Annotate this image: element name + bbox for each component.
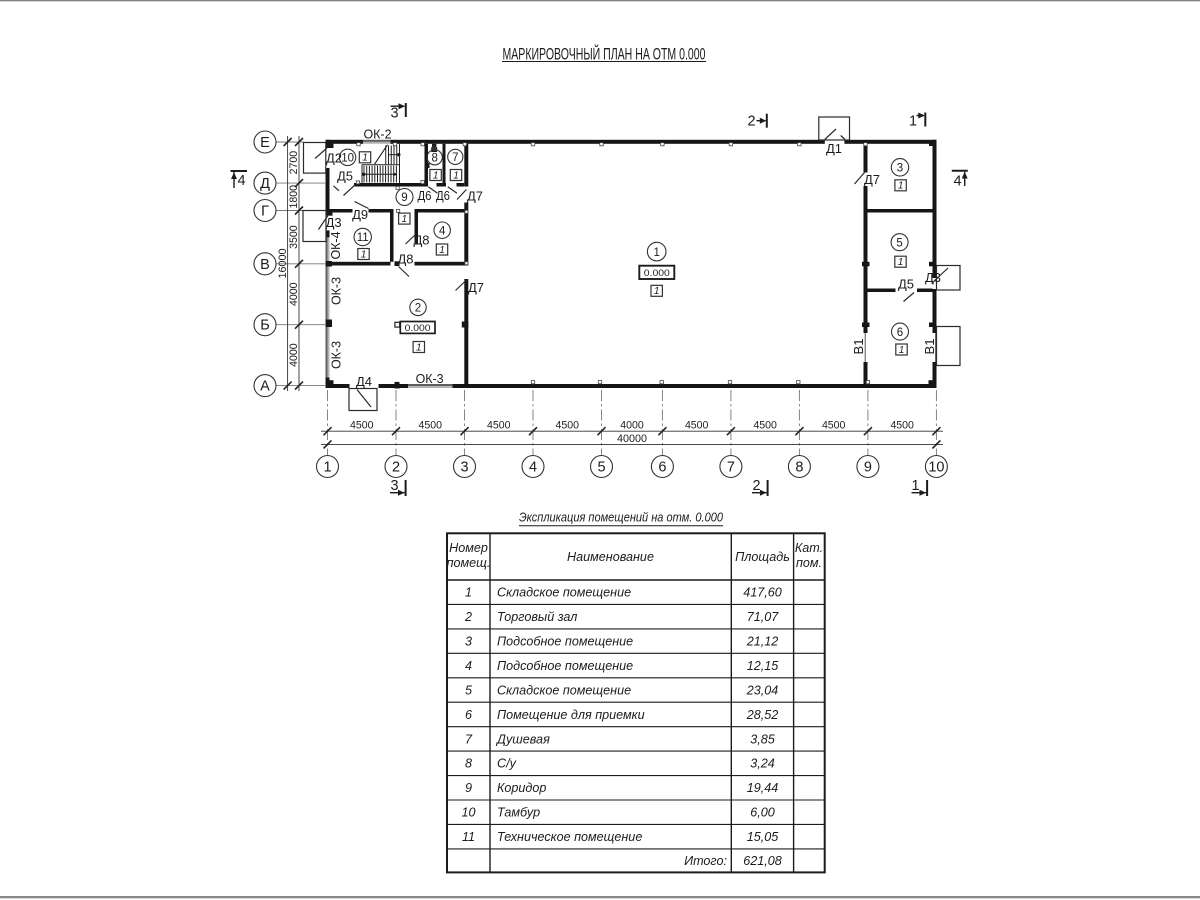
svg-text:МАРКИРОВОЧНЫЙ ПЛАН НА ОТМ 0.00: МАРКИРОВОЧНЫЙ ПЛАН НА ОТМ 0.000 <box>503 45 706 64</box>
svg-text:1: 1 <box>653 247 659 259</box>
svg-text:4: 4 <box>439 225 446 237</box>
svg-text:ОК-3: ОК-3 <box>416 371 444 386</box>
svg-text:621,08: 621,08 <box>743 854 782 868</box>
svg-text:5: 5 <box>896 237 902 249</box>
svg-text:Д4: Д4 <box>356 375 372 389</box>
svg-text:1: 1 <box>465 586 472 600</box>
svg-text:4000: 4000 <box>620 420 644 432</box>
svg-text:4: 4 <box>237 173 245 189</box>
svg-text:Подсобное помещение: Подсобное помещение <box>497 659 633 673</box>
svg-text:Тамбур: Тамбур <box>497 806 540 820</box>
svg-text:Д9: Д9 <box>352 208 368 222</box>
svg-text:Д7: Д7 <box>468 281 484 295</box>
svg-text:Д6: Д6 <box>418 189 432 203</box>
svg-text:Б: Б <box>260 318 270 334</box>
svg-text:23,04: 23,04 <box>746 683 779 697</box>
svg-text:Душевая: Душевая <box>495 732 550 746</box>
svg-text:8: 8 <box>431 153 437 165</box>
svg-text:4000: 4000 <box>288 343 300 367</box>
svg-text:1: 1 <box>362 153 368 164</box>
svg-text:2: 2 <box>752 478 760 494</box>
svg-text:Наименование: Наименование <box>567 550 654 564</box>
svg-text:3: 3 <box>460 460 468 476</box>
svg-text:В1: В1 <box>851 339 866 355</box>
svg-text:0.000: 0.000 <box>405 323 431 334</box>
svg-text:9: 9 <box>864 460 872 476</box>
svg-text:3: 3 <box>390 478 398 494</box>
svg-text:9: 9 <box>465 781 472 795</box>
svg-text:6: 6 <box>897 327 903 339</box>
svg-text:Г: Г <box>261 204 269 220</box>
svg-text:2: 2 <box>415 303 421 315</box>
svg-text:3,85: 3,85 <box>750 732 776 746</box>
svg-text:19,44: 19,44 <box>747 781 779 795</box>
svg-text:Д7: Д7 <box>467 189 483 203</box>
svg-text:ОК-2: ОК-2 <box>364 127 392 142</box>
svg-text:1: 1 <box>323 460 331 476</box>
svg-text:2: 2 <box>464 610 472 624</box>
svg-text:4500: 4500 <box>350 420 374 432</box>
svg-text:Д7: Д7 <box>864 173 880 187</box>
svg-text:4: 4 <box>953 174 961 190</box>
svg-text:Д8: Д8 <box>398 253 414 267</box>
svg-text:ОК-3: ОК-3 <box>329 277 344 305</box>
svg-text:пом.: пом. <box>796 556 822 570</box>
svg-text:1: 1 <box>898 257 904 268</box>
svg-text:Д2: Д2 <box>326 152 342 166</box>
svg-text:1: 1 <box>899 345 905 356</box>
svg-text:1: 1 <box>439 245 445 256</box>
svg-text:71,07: 71,07 <box>747 610 780 624</box>
svg-text:5: 5 <box>465 683 473 697</box>
svg-text:4: 4 <box>465 659 472 673</box>
svg-text:помещ.: помещ. <box>447 556 491 570</box>
svg-text:ОК-4: ОК-4 <box>328 232 343 260</box>
svg-text:4500: 4500 <box>890 420 914 432</box>
svg-text:Д1: Д1 <box>826 142 842 156</box>
svg-text:8: 8 <box>795 460 803 476</box>
svg-text:1: 1 <box>898 181 904 192</box>
svg-text:С/у: С/у <box>497 757 517 771</box>
svg-text:4500: 4500 <box>556 420 580 432</box>
svg-text:В: В <box>260 257 270 273</box>
svg-text:Коридор: Коридор <box>497 781 546 795</box>
svg-text:1: 1 <box>402 214 408 225</box>
svg-text:2700: 2700 <box>288 151 300 175</box>
svg-text:16000: 16000 <box>277 249 289 279</box>
svg-text:2: 2 <box>747 114 755 130</box>
svg-text:0.000: 0.000 <box>644 268 670 279</box>
svg-text:11: 11 <box>357 232 369 244</box>
svg-text:Номер: Номер <box>449 541 488 555</box>
svg-text:8: 8 <box>465 757 472 771</box>
svg-text:В1: В1 <box>922 339 937 355</box>
svg-text:Кат.: Кат. <box>795 541 823 555</box>
svg-text:Складское помещение: Складское помещение <box>497 683 631 697</box>
svg-text:4500: 4500 <box>419 420 443 432</box>
svg-text:4500: 4500 <box>487 420 511 432</box>
svg-text:Складское помещение: Складское помещение <box>497 586 631 600</box>
svg-text:Д8: Д8 <box>414 233 430 247</box>
svg-text:Помещение для приемки: Помещение для приемки <box>497 708 645 722</box>
svg-text:11: 11 <box>462 830 475 844</box>
svg-text:1: 1 <box>433 170 439 181</box>
svg-text:10: 10 <box>341 153 354 165</box>
svg-text:3500: 3500 <box>288 225 300 249</box>
svg-text:1: 1 <box>909 114 917 130</box>
svg-text:4500: 4500 <box>822 420 846 432</box>
svg-text:Д3: Д3 <box>925 271 941 285</box>
svg-text:Техническое помещение: Техническое помещение <box>497 830 642 844</box>
svg-text:1800: 1800 <box>288 185 300 209</box>
svg-text:Д5: Д5 <box>898 278 914 292</box>
svg-text:Подсобное помещение: Подсобное помещение <box>497 635 633 649</box>
svg-text:3: 3 <box>390 106 398 122</box>
svg-text:2: 2 <box>392 460 400 476</box>
svg-text:12,15: 12,15 <box>747 659 780 673</box>
svg-text:9: 9 <box>401 192 407 204</box>
svg-text:15,05: 15,05 <box>747 830 780 844</box>
svg-text:6,00: 6,00 <box>750 806 775 820</box>
svg-text:Д5: Д5 <box>337 170 353 184</box>
svg-text:Итого:: Итого: <box>684 854 727 868</box>
svg-text:6: 6 <box>465 708 472 722</box>
svg-text:Д6: Д6 <box>436 189 450 203</box>
svg-text:3: 3 <box>897 163 903 175</box>
svg-text:3: 3 <box>465 635 472 649</box>
svg-text:Торговый зал: Торговый зал <box>497 610 577 624</box>
svg-text:4500: 4500 <box>685 420 709 432</box>
svg-text:Е: Е <box>260 135 270 151</box>
svg-text:417,60: 417,60 <box>743 586 782 600</box>
svg-text:4000: 4000 <box>288 282 300 306</box>
svg-text:3,24: 3,24 <box>750 757 775 771</box>
svg-text:4500: 4500 <box>753 420 777 432</box>
svg-text:28,52: 28,52 <box>746 708 779 722</box>
svg-text:Д: Д <box>260 176 270 192</box>
svg-text:4: 4 <box>529 460 537 476</box>
svg-text:А: А <box>260 379 270 395</box>
svg-text:5: 5 <box>597 460 605 476</box>
svg-text:10: 10 <box>461 806 475 820</box>
svg-text:1: 1 <box>453 170 459 181</box>
svg-text:21,12: 21,12 <box>746 635 779 649</box>
svg-text:1: 1 <box>416 342 422 353</box>
svg-text:1: 1 <box>654 286 660 297</box>
svg-text:7: 7 <box>452 152 458 164</box>
svg-text:10: 10 <box>928 460 944 476</box>
svg-text:Экспликация помещений на отм.: Экспликация помещений на отм. 0.000 <box>519 511 723 525</box>
svg-text:7: 7 <box>465 732 473 746</box>
svg-text:Д3: Д3 <box>326 216 342 230</box>
svg-text:1: 1 <box>361 249 367 260</box>
svg-text:7: 7 <box>727 460 735 476</box>
svg-text:40000: 40000 <box>617 433 647 445</box>
svg-text:Площадь: Площадь <box>735 550 790 564</box>
svg-text:ОК-3: ОК-3 <box>329 341 344 369</box>
svg-text:1: 1 <box>911 478 919 494</box>
svg-text:6: 6 <box>658 460 666 476</box>
